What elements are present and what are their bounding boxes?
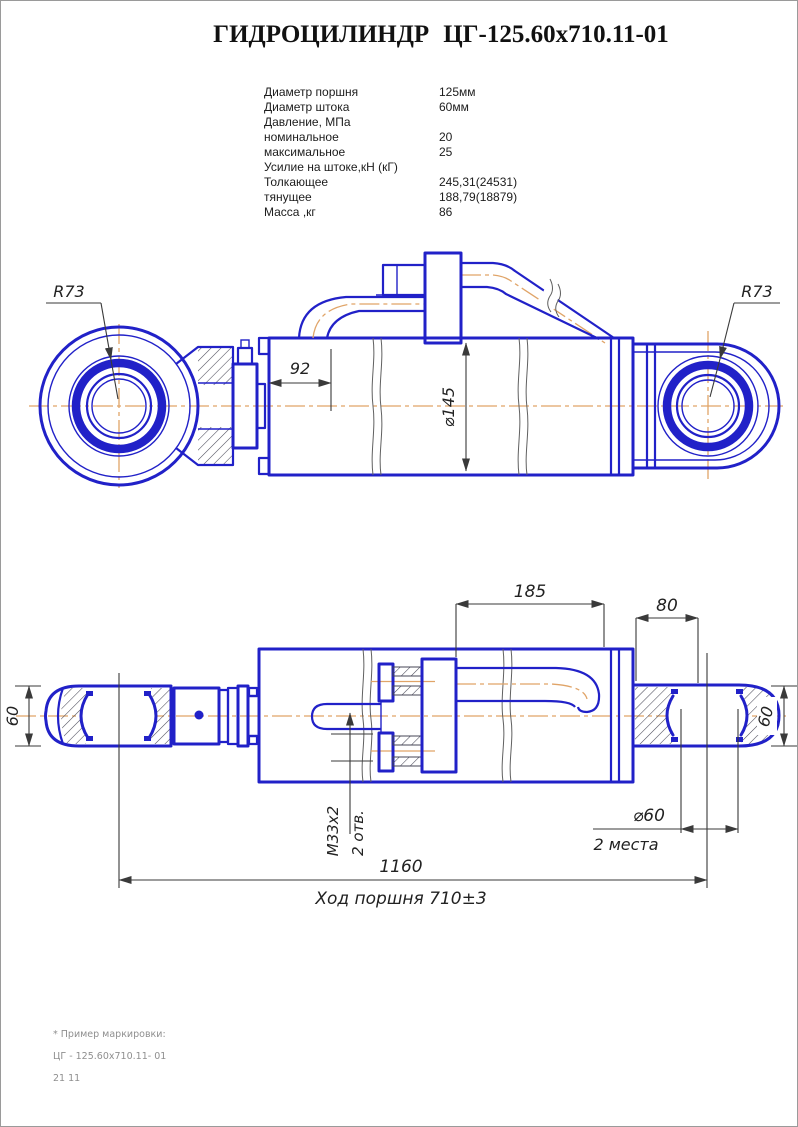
- spec-row: Давление, МПа: [264, 115, 517, 130]
- dim-d145: ⌀145: [439, 387, 458, 427]
- marking-note: * Пример маркировки: ЦГ - 125.60х710.11-…: [53, 1024, 166, 1090]
- dim-185: 185: [514, 582, 546, 602]
- side-view-drawing: R73 R73 92 ⌀145: [1, 231, 798, 521]
- dim-2-otv: 2 отв.: [349, 810, 367, 856]
- dim-d60: ⌀60: [633, 806, 665, 826]
- marking-note-line3: 21 11: [53, 1068, 166, 1090]
- spec-row: Толкающее245,31(24531): [264, 175, 517, 190]
- dim-60-left: 60: [3, 706, 22, 726]
- spec-row: максимальное25: [264, 145, 517, 160]
- bearing-housing-left: [46, 686, 172, 746]
- title-main: ГИДРОЦИЛИНДР: [213, 21, 429, 48]
- dim-piston-stroke: Ход поршня 710±3: [314, 889, 486, 909]
- drawing-sheet: ГИДРОЦИЛИНДРЦГ-125.60x710.11-01 Диаметр …: [0, 0, 798, 1127]
- spec-row: тянущее188,79(18879): [264, 190, 517, 205]
- title-code: ЦГ-125.60x710.11-01: [443, 21, 669, 48]
- spec-row: Диаметр поршня125мм: [264, 85, 517, 100]
- spec-row: номинальное20: [264, 130, 517, 145]
- marking-note-line1: * Пример маркировки:: [53, 1024, 166, 1046]
- dim-r73-right: R73: [741, 282, 772, 301]
- dim-92: 92: [290, 359, 310, 378]
- dim-m33x2: М33х2: [324, 806, 342, 856]
- marking-note-line2: ЦГ - 125.60х710.11- 01: [53, 1046, 166, 1068]
- dim-2-mesta: 2 места: [593, 835, 658, 854]
- dim-r73-left: R73: [53, 282, 84, 301]
- spec-table: Диаметр поршня125мм Диаметр штока60мм Да…: [264, 85, 517, 220]
- dim-1160: 1160: [379, 857, 422, 877]
- spec-row: Масса ,кг86: [264, 205, 517, 220]
- plan-view-drawing: 185 80 60 60 М33х2 2 отв. ⌀60 2 места 11…: [1, 561, 798, 921]
- port-block-and-pipes: [299, 253, 614, 343]
- page-title: ГИДРОЦИЛИНДРЦГ-125.60x710.11-01: [1, 21, 797, 49]
- spec-row: Усилие на штоке,кН (кГ): [264, 160, 517, 175]
- spec-row: Диаметр штока60мм: [264, 100, 517, 115]
- dim-80: 80: [656, 596, 678, 616]
